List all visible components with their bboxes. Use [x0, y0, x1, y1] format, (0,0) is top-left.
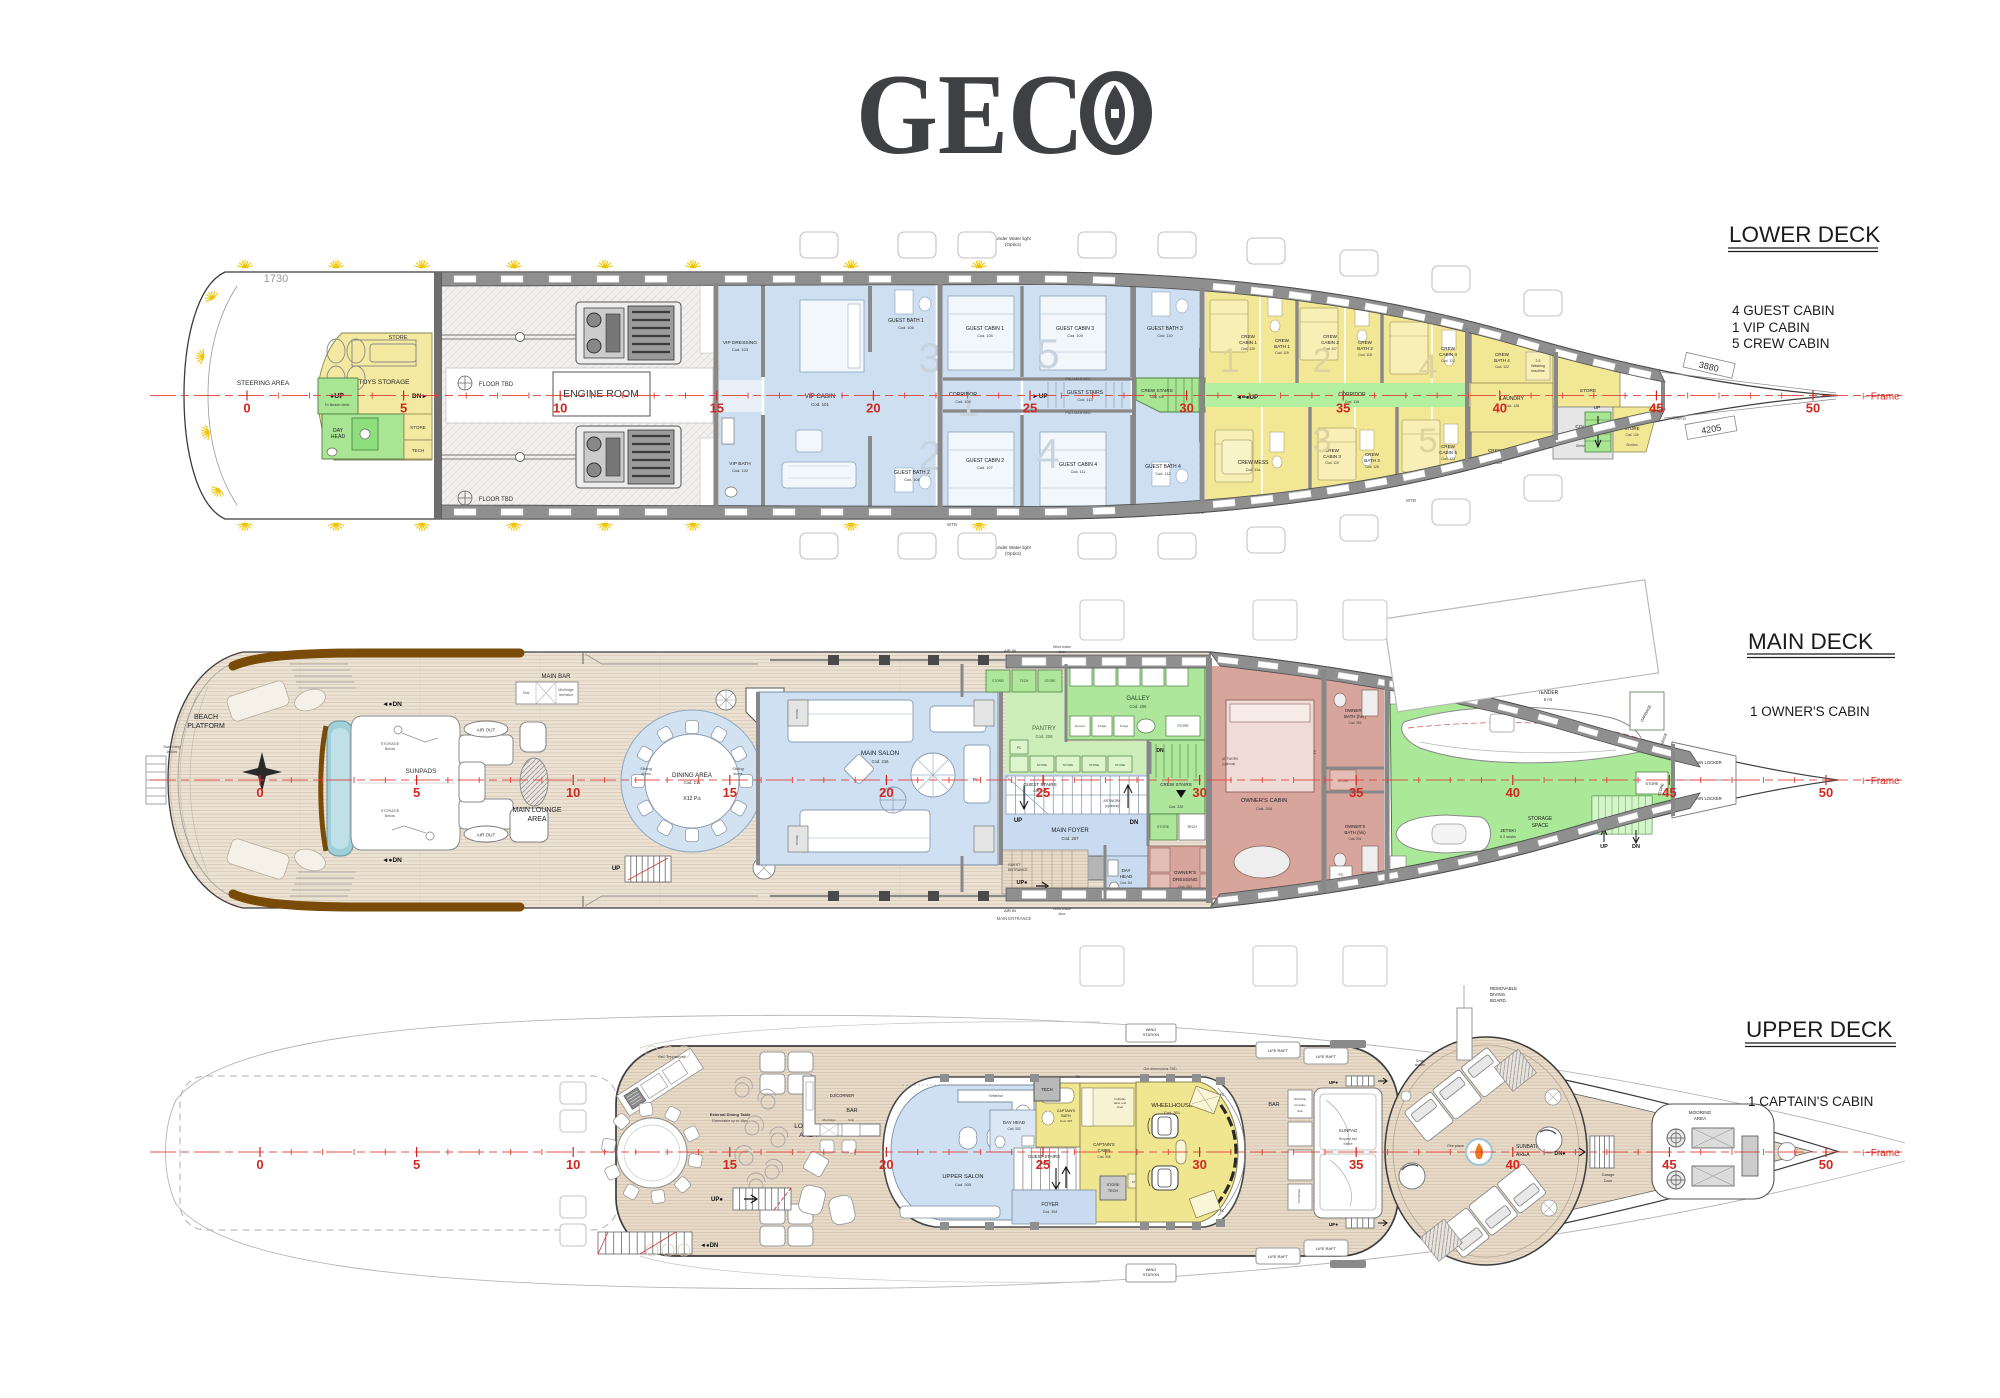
svg-text:PULLMAN BED: PULLMAN BED	[1065, 377, 1091, 381]
svg-text:UP●: UP●	[1329, 1080, 1338, 1085]
svg-text:Sink: Sink	[848, 1118, 854, 1122]
svg-text:CAPTAIN'S: CAPTAIN'S	[1057, 1109, 1076, 1113]
svg-text:Cod. 302: Cod. 302	[1008, 1127, 1021, 1131]
svg-text:10: 10	[566, 1157, 580, 1172]
svg-text:GUEST CABIN 1: GUEST CABIN 1	[966, 326, 1004, 332]
svg-text:X12 P.s: X12 P.s	[683, 796, 701, 802]
svg-text:40: 40	[1506, 785, 1520, 800]
svg-text:4 GUEST CABIN: 4 GUEST CABIN	[1732, 303, 1835, 318]
svg-text:OWNER'S: OWNER'S	[1174, 870, 1197, 876]
svg-text:STORE: STORE	[1177, 724, 1189, 728]
svg-text:CREW STAIRS: CREW STAIRS	[1141, 388, 1173, 393]
svg-text:Icemaker: Icemaker	[559, 693, 574, 697]
svg-text:GUEST BATH 1: GUEST BATH 1	[888, 318, 924, 324]
svg-text:TECH: TECH	[1187, 825, 1197, 829]
svg-text:50: 50	[1806, 401, 1820, 416]
svg-text:2.5: 2.5	[1536, 359, 1541, 363]
svg-text:Wind brake: Wind brake	[1053, 645, 1071, 649]
svg-text:LIFE RAFT: LIFE RAFT	[1316, 1054, 1337, 1059]
svg-text:◄●DN: ◄●DN	[700, 1243, 718, 1249]
svg-text:GALLEY: GALLEY	[1126, 696, 1149, 702]
svg-text:GUEST BATH 4: GUEST BATH 4	[1145, 464, 1181, 470]
svg-text:To Beach deck: To Beach deck	[325, 403, 350, 407]
svg-text:Shelves: Shelves	[1626, 443, 1638, 447]
svg-text:External Dining Table: External Dining Table	[710, 1112, 751, 1117]
svg-text:STORE: STORE	[1106, 1183, 1119, 1187]
svg-text:STORE/: STORE/	[992, 679, 1004, 683]
svg-text:5: 5	[400, 401, 407, 416]
svg-text:Cod. 208: Cod. 208	[1036, 734, 1054, 739]
svg-text:DRESSING: DRESSING	[1172, 877, 1197, 883]
svg-text:SUNBATH: SUNBATH	[1516, 1144, 1540, 1150]
svg-text:20: 20	[879, 785, 893, 800]
svg-text:VIP BATH: VIP BATH	[729, 461, 751, 467]
svg-text:Cod. 11a: Cod. 11a	[1246, 468, 1260, 472]
svg-text:1 VIP CABIN: 1 VIP CABIN	[1732, 320, 1810, 335]
svg-text:STORE: STORE	[1063, 763, 1073, 767]
svg-text:GUEST CABIN 2: GUEST CABIN 2	[966, 458, 1004, 464]
svg-text:WING: WING	[1146, 1028, 1156, 1032]
svg-text:0: 0	[256, 1157, 263, 1172]
svg-text:GUEST: GUEST	[1008, 863, 1021, 867]
svg-text:Below: Below	[385, 747, 396, 751]
svg-text:WING: WING	[1146, 1268, 1156, 1272]
svg-text:5 CREW CABIN: 5 CREW CABIN	[1732, 336, 1830, 351]
svg-text:Cod. 202: Cod. 202	[1349, 721, 1362, 725]
svg-text:Fridge: Fridge	[1098, 724, 1107, 728]
svg-text:⊢Frame: ⊢Frame	[1862, 1148, 1900, 1159]
svg-text:TV: TV	[1076, 1075, 1081, 1079]
svg-text:BOARD: BOARD	[1490, 998, 1506, 1003]
svg-text:GUEST BATH 3: GUEST BATH 3	[1147, 326, 1183, 332]
svg-text:35: 35	[1349, 785, 1363, 800]
svg-text:VIP CABIN: VIP CABIN	[805, 393, 836, 400]
svg-text:SUNPADS: SUNPADS	[406, 768, 438, 775]
svg-text:Cod. 304: Cod. 304	[1043, 1210, 1058, 1214]
svg-text:CREW: CREW	[1241, 334, 1256, 339]
svg-text:X 2 seater: X 2 seater	[1500, 835, 1517, 839]
svg-text:WHEELHOUSE: WHEELHOUSE	[1151, 1103, 1192, 1109]
svg-text:(Optics): (Optics)	[1005, 242, 1022, 247]
svg-text:40: 40	[1493, 401, 1507, 416]
svg-text:Cod. 113: Cod. 113	[1077, 398, 1092, 402]
svg-text:40: 40	[1506, 1157, 1520, 1172]
svg-text:doors: doors	[733, 772, 743, 776]
svg-text:shower: shower	[1415, 1063, 1426, 1067]
svg-text:Cod. 216: Cod. 216	[872, 759, 890, 764]
svg-text:30: 30	[1179, 401, 1193, 416]
svg-text:CREW: CREW	[1365, 452, 1380, 457]
svg-text:CREW: CREW	[1441, 346, 1456, 351]
svg-text:Cod. 2l4: Cod. 2l4	[1120, 881, 1132, 885]
svg-text:DN: DN	[1632, 844, 1640, 850]
svg-text:UPPER SALON: UPPER SALON	[942, 1174, 983, 1180]
svg-text:Cod. 206: Cod. 206	[1130, 704, 1148, 709]
svg-text:machine: machine	[1531, 369, 1545, 373]
svg-text:6 mt: 6 mt	[1544, 697, 1553, 702]
svg-text:STORE: STORE	[795, 709, 799, 719]
svg-text:Washing: Washing	[1531, 364, 1545, 368]
svg-text:STORE: STORE	[1645, 782, 1658, 786]
svg-text:Cod. 125: Cod. 125	[1365, 465, 1379, 469]
svg-text:Cod. 204: Cod. 204	[1256, 806, 1273, 811]
svg-text:DN: DN	[1156, 748, 1164, 754]
svg-text:50: 50	[1819, 1157, 1833, 1172]
svg-text:Cod. 105: Cod. 105	[977, 334, 992, 338]
svg-text:STORE: STORE	[1045, 679, 1056, 683]
svg-text:15: 15	[710, 401, 724, 416]
svg-text:CREW STAIRS: CREW STAIRS	[1160, 782, 1192, 787]
svg-text:4: 4	[1036, 430, 1059, 477]
svg-text:Cod. 108: Cod. 108	[904, 478, 919, 482]
svg-text:Cod. 120: Cod. 120	[1241, 347, 1255, 351]
svg-text:FLOOR TBD: FLOOR TBD	[479, 497, 514, 503]
svg-text:15: 15	[723, 785, 737, 800]
svg-text:PLATFORM: PLATFORM	[187, 723, 225, 730]
svg-text:MAIN BAR: MAIN BAR	[541, 674, 571, 680]
svg-text:AIR IN: AIR IN	[1004, 648, 1016, 653]
svg-text:Icemaker: Icemaker	[1294, 1103, 1306, 1107]
svg-text:BATH 3: BATH 3	[1364, 458, 1380, 463]
svg-text:DAY: DAY	[1121, 868, 1130, 873]
svg-text:MAIN ENTRANCE: MAIN ENTRANCE	[997, 916, 1032, 921]
svg-text:PC: PC	[1017, 746, 1022, 750]
svg-text:UP: UP	[612, 866, 620, 872]
svg-text:DAY HEAD: DAY HEAD	[1003, 1120, 1025, 1125]
svg-text:UPPER DECK: UPPER DECK	[1746, 1017, 1892, 1042]
svg-text:CREW: CREW	[1495, 352, 1510, 357]
svg-text:PULLMAN BED: PULLMAN BED	[1065, 411, 1091, 415]
svg-text:2: 2	[1313, 342, 1332, 380]
svg-text:Cod. 111: Cod. 111	[1071, 470, 1086, 474]
svg-text:chair: chair	[1117, 1105, 1124, 1109]
svg-text:FC: FC	[1338, 873, 1343, 877]
svg-text:Extendable up to 16px: Extendable up to 16px	[712, 1119, 748, 1123]
svg-text:1: 1	[1221, 342, 1240, 380]
svg-text:TECH: TECH	[412, 448, 425, 453]
svg-text:OWNER'S CABIN: OWNER'S CABIN	[1241, 798, 1288, 804]
svg-text:AREA: AREA	[1694, 1116, 1707, 1121]
svg-text:ENTRANCE: ENTRANCE	[1008, 868, 1028, 872]
svg-text:45: 45	[1649, 401, 1663, 416]
svg-text:Fire place: Fire place	[1447, 1144, 1464, 1148]
svg-text:CREW: CREW	[1441, 444, 1456, 449]
svg-text:⊢Frame: ⊢Frame	[1862, 776, 1900, 787]
svg-text:CREW: CREW	[1358, 340, 1373, 345]
svg-text:5: 5	[413, 1157, 420, 1172]
svg-text:STORAGE: STORAGE	[381, 742, 400, 746]
svg-text:Cod. 102: Cod. 102	[732, 468, 749, 473]
svg-text:30: 30	[1192, 1157, 1206, 1172]
svg-text:UP: UP	[1594, 405, 1600, 410]
svg-text:CWTB: CWTB	[1674, 416, 1686, 421]
svg-text:Cod. 119: Cod. 119	[1325, 461, 1339, 465]
svg-text:CABIN 4: CABIN 4	[1439, 352, 1457, 357]
svg-text:door: door	[1058, 650, 1066, 654]
svg-text:45: 45	[1662, 1157, 1676, 1172]
svg-text:ENGINE ROOM: ENGINE ROOM	[563, 388, 639, 400]
svg-text:MAIN FOYER: MAIN FOYER	[1051, 828, 1089, 834]
svg-text:TOYS STORAGE: TOYS STORAGE	[358, 379, 410, 386]
svg-text:Cod. 220: Cod. 220	[1169, 805, 1184, 809]
svg-text:STORE: STORE	[1089, 763, 1099, 767]
svg-text:Cod. 123: Cod. 123	[1441, 457, 1455, 461]
svg-text:TECH: TECH	[1020, 679, 1029, 683]
svg-text:HEAD: HEAD	[1120, 874, 1133, 879]
svg-text:Wind brake: Wind brake	[1053, 907, 1071, 911]
svg-text:Kettle/bar: Kettle/bar	[989, 1094, 1004, 1098]
svg-text:Cod. 201: Cod. 201	[1349, 837, 1362, 841]
svg-text:CABIN 1: CABIN 1	[1239, 340, 1257, 345]
svg-text:door: door	[1058, 912, 1066, 916]
svg-text:PC: PC	[1220, 1209, 1225, 1213]
svg-text:⊢Frame: ⊢Frame	[1862, 392, 1900, 403]
svg-text:25: 25	[1036, 1157, 1050, 1172]
svg-text:DINING AREA: DINING AREA	[672, 772, 713, 779]
svg-text:Sink: Sink	[523, 691, 530, 695]
svg-text:STORE: STORE	[1157, 825, 1170, 829]
svg-text:Cod. 12b: Cod. 12b	[1626, 433, 1639, 437]
svg-text:►UP: ►UP	[1032, 393, 1048, 400]
svg-text:1 CAPTAIN'S CABIN: 1 CAPTAIN'S CABIN	[1748, 1094, 1873, 1109]
svg-text:LOWER DECK: LOWER DECK	[1729, 222, 1880, 247]
svg-text:UP●: UP●	[1329, 1222, 1338, 1227]
svg-text:BATH 1: BATH 1	[1274, 344, 1290, 349]
svg-text:5: 5	[1419, 422, 1438, 460]
svg-text:GUEST CABIN 3: GUEST CABIN 3	[1056, 326, 1094, 332]
svg-text:Get dimensions TBD: Get dimensions TBD	[1143, 1067, 1176, 1071]
svg-text:STORAGE: STORAGE	[1528, 816, 1553, 822]
svg-text:Under Water light: Under Water light	[995, 236, 1031, 241]
svg-text:ARTWORK: ARTWORK	[1222, 757, 1239, 761]
svg-text:1 OWNER'S CABIN: 1 OWNER'S CABIN	[1750, 704, 1870, 719]
svg-text:45: 45	[1662, 785, 1676, 800]
svg-text:DIVING: DIVING	[1490, 992, 1506, 997]
svg-text:Cod. 307: Cod. 307	[1060, 1119, 1073, 1123]
svg-text:doors: doors	[641, 772, 651, 776]
svg-text:(optional): (optional)	[1222, 762, 1235, 766]
svg-text:Cod. 207: Cod. 207	[1062, 836, 1080, 841]
svg-text:BATH: BATH	[1061, 1114, 1071, 1118]
svg-text:UP: UP	[1600, 844, 1608, 850]
svg-text:Cod. 118: Cod. 118	[1358, 353, 1372, 357]
svg-text:20: 20	[866, 401, 880, 416]
svg-text:●UP: ●UP	[330, 393, 344, 400]
svg-text:Cod. 106: Cod. 106	[898, 326, 913, 330]
svg-text:Freezer: Freezer	[1075, 724, 1085, 728]
svg-text:BATH 2: BATH 2	[1357, 346, 1373, 351]
svg-text:ARTWORK: ARTWORK	[1103, 799, 1121, 803]
svg-text:STORAGE: STORAGE	[1297, 1189, 1301, 1204]
svg-text:AIR OUT: AIR OUT	[477, 833, 496, 838]
svg-text:CABIN 5: CABIN 5	[1439, 450, 1457, 455]
svg-text:STEERING AREA: STEERING AREA	[237, 380, 290, 387]
svg-text:35: 35	[1336, 401, 1350, 416]
svg-text:CAPTAIN'S: CAPTAIN'S	[1093, 1142, 1115, 1147]
svg-text:TV: TV	[1313, 749, 1317, 754]
svg-text:PANTRY: PANTRY	[1032, 726, 1056, 732]
svg-text:Request bed: Request bed	[1339, 1137, 1357, 1141]
svg-text:(optional): (optional)	[1105, 804, 1119, 808]
svg-text:0: 0	[243, 401, 250, 416]
svg-text:STORE: STORE	[389, 335, 408, 341]
svg-text:◄●DN: ◄●DN	[382, 857, 402, 864]
svg-text:Door: Door	[1604, 1179, 1613, 1183]
svg-text:BATH 4: BATH 4	[1494, 358, 1510, 363]
svg-text:Minifridge: Minifridge	[822, 1118, 835, 1122]
svg-text:MAIN LOUNGE: MAIN LOUNGE	[512, 807, 561, 814]
svg-text:MOORING: MOORING	[1689, 1110, 1712, 1115]
svg-text:UP: UP	[1014, 818, 1022, 824]
svg-text:BEACH: BEACH	[194, 714, 218, 721]
svg-text:STORE: STORE	[410, 425, 426, 430]
svg-text:Settee: Settee	[1343, 1142, 1352, 1146]
svg-text:1730: 1730	[264, 273, 288, 285]
svg-text:Under Water light: Under Water light	[995, 545, 1031, 550]
svg-text:BAR: BAR	[1268, 1102, 1279, 1108]
svg-text:BATH (his): BATH (his)	[1344, 830, 1366, 835]
svg-text:FOYER: FOYER	[1041, 1202, 1059, 1208]
svg-text:FLOOR TBD: FLOOR TBD	[479, 382, 514, 388]
svg-text:Sliding: Sliding	[732, 767, 743, 771]
svg-text:DJ/CORNER: DJ/CORNER	[830, 1093, 854, 1098]
svg-text:AIR OUT: AIR OUT	[477, 728, 496, 733]
svg-text:SPACE: SPACE	[1532, 823, 1549, 829]
svg-text:DN: DN	[1130, 820, 1139, 826]
svg-text:5: 5	[413, 785, 420, 800]
svg-text:UP●: UP●	[711, 1197, 723, 1203]
svg-text:GUEST BATH 2: GUEST BATH 2	[894, 470, 930, 476]
svg-text:1: 1	[957, 383, 978, 425]
svg-text:GUEST CABIN 4: GUEST CABIN 4	[1059, 462, 1097, 468]
svg-text:Cod. 101: Cod. 101	[811, 402, 829, 407]
svg-text:PC: PC	[1220, 1093, 1225, 1097]
svg-text:Cod. 306: Cod. 306	[1098, 1155, 1111, 1159]
svg-text:Below: Below	[385, 814, 396, 818]
svg-text:Cod. 104: Cod. 104	[955, 400, 970, 404]
svg-text:50: 50	[1819, 785, 1833, 800]
svg-text:0: 0	[256, 785, 263, 800]
svg-text:Cod. 121: Cod. 121	[1441, 359, 1455, 363]
svg-text:STORE: STORE	[795, 835, 799, 845]
svg-text:REMOVABLE: REMOVABLE	[1490, 986, 1517, 991]
svg-text:Garage: Garage	[1602, 1173, 1615, 1177]
svg-text:VIP DRESSING: VIP DRESSING	[723, 340, 757, 346]
svg-text:WTB: WTB	[947, 522, 957, 527]
svg-text:Cod. 107: Cod. 107	[977, 466, 992, 470]
svg-text:Fridge: Fridge	[1120, 724, 1129, 728]
svg-text:(Optics): (Optics)	[1005, 551, 1022, 556]
svg-text:LIFE RAFT: LIFE RAFT	[1316, 1246, 1337, 1251]
svg-text:10: 10	[566, 785, 580, 800]
svg-text:Cod. 109: Cod. 109	[1067, 334, 1082, 338]
svg-text:4: 4	[1419, 348, 1438, 386]
svg-text:35: 35	[1349, 1157, 1363, 1172]
svg-text:3: 3	[1313, 422, 1332, 460]
svg-text:25: 25	[1036, 785, 1050, 800]
svg-text:AIR IN: AIR IN	[1004, 908, 1016, 913]
svg-text:BAR: BAR	[846, 1108, 857, 1114]
svg-text:MAIN SALON: MAIN SALON	[861, 750, 899, 757]
svg-text:Sink: Sink	[1297, 1109, 1303, 1113]
svg-text:WTB: WTB	[1406, 498, 1416, 503]
svg-text:Cod. 112: Cod. 112	[1155, 472, 1170, 476]
svg-text:SUNPAD: SUNPAD	[1339, 1128, 1358, 1133]
svg-text:TECH: TECH	[1108, 1189, 1119, 1193]
svg-text:STORE: STORE	[1037, 763, 1047, 767]
svg-text:Cod. 122: Cod. 122	[1495, 365, 1509, 369]
svg-text:Cod. 305: Cod. 305	[955, 1182, 972, 1187]
svg-text:Minifridge: Minifridge	[1294, 1097, 1307, 1101]
svg-text:25: 25	[1023, 401, 1037, 416]
svg-text:LIFE RAFT: LIFE RAFT	[1268, 1048, 1289, 1053]
svg-text:CREW MESS: CREW MESS	[1238, 460, 1270, 466]
svg-text:MAIN DECK: MAIN DECK	[1748, 629, 1873, 654]
svg-text:Minifridge: Minifridge	[558, 688, 573, 692]
svg-text:CREW: CREW	[1275, 338, 1290, 343]
svg-text:DN►: DN►	[412, 393, 428, 400]
svg-text:20: 20	[879, 1157, 893, 1172]
svg-text:30: 30	[1192, 785, 1206, 800]
svg-text:Cod. 110: Cod. 110	[1157, 334, 1172, 338]
svg-text:CREW: CREW	[1323, 334, 1338, 339]
svg-text:HEAD: HEAD	[331, 434, 346, 440]
svg-text:STATION: STATION	[1143, 1033, 1159, 1037]
svg-text:OWNER'S: OWNER'S	[1345, 824, 1366, 829]
svg-text:LIFE RAFT: LIFE RAFT	[1268, 1254, 1289, 1259]
svg-text:STATION: STATION	[1143, 1273, 1159, 1277]
svg-text:AREA: AREA	[527, 816, 546, 823]
svg-text:Cod. 119: Cod. 119	[1275, 351, 1289, 355]
svg-text:◄●DN: ◄●DN	[382, 701, 402, 708]
svg-text:Swimming: Swimming	[163, 745, 181, 749]
svg-text:15: 15	[723, 1157, 737, 1172]
svg-text:STORAGE: STORAGE	[381, 809, 400, 813]
svg-text:UP●: UP●	[1017, 880, 1028, 886]
svg-text:GEC: GEC	[856, 51, 1084, 178]
svg-text:STORE: STORE	[1115, 763, 1125, 767]
svg-text:Cod. 103: Cod. 103	[732, 347, 749, 352]
svg-text:5: 5	[1036, 330, 1059, 377]
svg-text:10: 10	[553, 401, 567, 416]
svg-text:Sliding: Sliding	[640, 767, 651, 771]
svg-text:TECH: TECH	[1041, 1087, 1052, 1092]
svg-text:JETSKI: JETSKI	[1500, 828, 1516, 833]
